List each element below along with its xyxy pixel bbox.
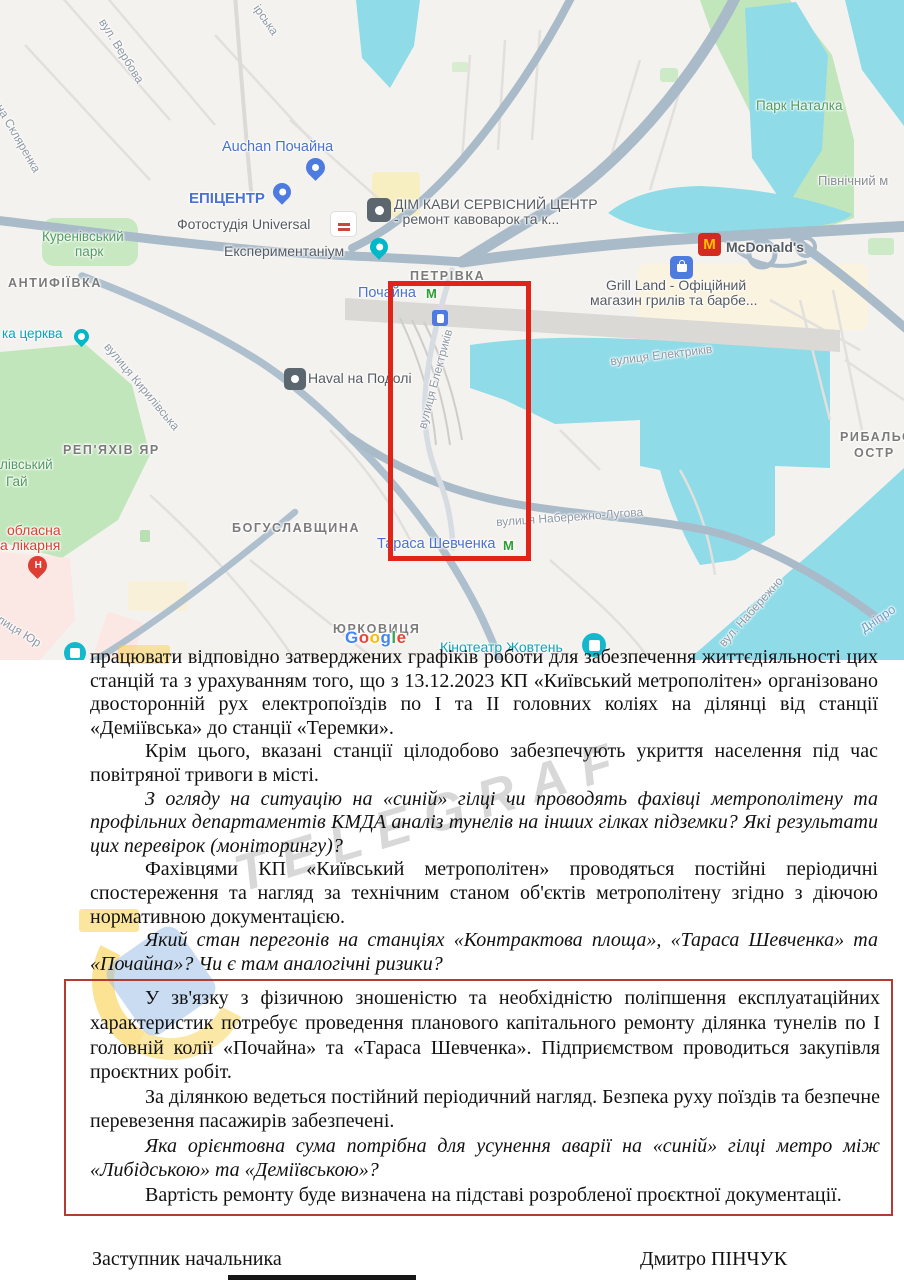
map-label-repiakhiv-yar: РЕП'ЯХІВ ЯР: [63, 443, 160, 457]
signature-title: Заступник начальника: [92, 1248, 282, 1271]
mcdonalds-icon: M: [698, 233, 721, 256]
map-annotation-rectangle: [388, 281, 531, 561]
map-label-kurenivskyi-1: Куренівський: [42, 229, 124, 244]
mcdonalds-letter: M: [703, 236, 716, 253]
map-label-kurenivskyi-2: парк: [75, 244, 103, 259]
google-letter: o: [359, 628, 370, 647]
google-letter: o: [370, 628, 381, 647]
signature-line: [228, 1275, 416, 1280]
map-label-pivnichnyi-mist: Північний м: [818, 173, 888, 188]
signature-name: Дмитро ПІНЧУК: [640, 1248, 787, 1271]
google-letter: g: [381, 628, 392, 647]
fotostudiia-logo-icon: [330, 211, 357, 237]
map-label-hai-1: лівський: [0, 457, 53, 472]
map-label-mcdonalds: McDonald's: [726, 239, 804, 255]
question-paragraph: З огляду на ситуацію на «синій» гілці чи…: [90, 788, 878, 859]
paragraph: У зв'язку з фізичною зношеністю та необх…: [90, 986, 880, 1084]
paragraph: За ділянкою ведеться постійний періодичн…: [90, 1085, 880, 1134]
map-label-grill-land-1: Grill Land - Офіційний: [606, 277, 746, 293]
map-label-rybalskyi-1: РИБАЛЬС: [840, 430, 904, 444]
letter-body: працювати відповідно затверджених графік…: [0, 646, 904, 1216]
map-label-antyfiivka: АНТИФІЇВКА: [8, 276, 102, 290]
haval-logo-icon: [284, 368, 306, 390]
map-label-oblasna-1: обласна: [7, 522, 61, 538]
map-label-bohuslavshchyna: БОГУСЛАВЩИНА: [232, 521, 360, 535]
hospital-letter: Н: [34, 560, 41, 571]
highlighted-answer-box: У зв'язку з фізичною зношеністю та необх…: [64, 979, 893, 1215]
paragraph: Фахівцями КП «Київський метрополітен» пр…: [90, 858, 878, 929]
map-label-oblasna-2: а лікарня: [0, 537, 60, 553]
google-letter: G: [345, 628, 359, 647]
question-paragraph: Яка орієнтовна сума потрібна для усуненн…: [90, 1134, 880, 1183]
map-label-dim-kavy-1: ДІМ КАВИ СЕРВІСНИЙ ЦЕНТР: [394, 196, 598, 212]
google-letter: e: [397, 628, 407, 647]
document-page: ірська вул. Вербова ена Скляренка Парк Н…: [0, 0, 904, 1280]
map-label-eksperymentanium: Експериментаніум: [224, 243, 344, 259]
paragraph: працювати відповідно затверджених графік…: [90, 646, 878, 740]
grill-land-bag-icon: [670, 256, 693, 279]
map-label-hai-2: Гай: [6, 474, 28, 489]
map-label-fotostudiia: Фотостудія Universal: [177, 216, 310, 232]
paragraph: Крім цього, вказані станції цілодобово з…: [90, 740, 878, 787]
map-label-dim-kavy-2: - ремонт кавоварок та к...: [394, 211, 559, 227]
map-label-park-natalka: Парк Наталка: [756, 98, 842, 113]
paragraph: Вартість ремонту буде визначена на підст…: [90, 1183, 880, 1208]
map-image: ірська вул. Вербова ена Скляренка Парк Н…: [0, 0, 904, 660]
map-label-tserkva: ка церква: [2, 326, 63, 341]
map-label-rybalskyi-2: ОСТР: [854, 446, 895, 460]
map-label-auchan: Auchan Почайна: [222, 139, 333, 155]
question-paragraph: Який стан перегонів на станціях «Контрак…: [90, 929, 878, 976]
map-label-grill-land-2: магазин грилів та барбе...: [590, 292, 758, 308]
google-logo: Google: [345, 628, 407, 648]
dim-kavy-logo-icon: [367, 198, 391, 222]
map-label-epicentr: ЕПІЦЕНТР: [189, 190, 265, 207]
